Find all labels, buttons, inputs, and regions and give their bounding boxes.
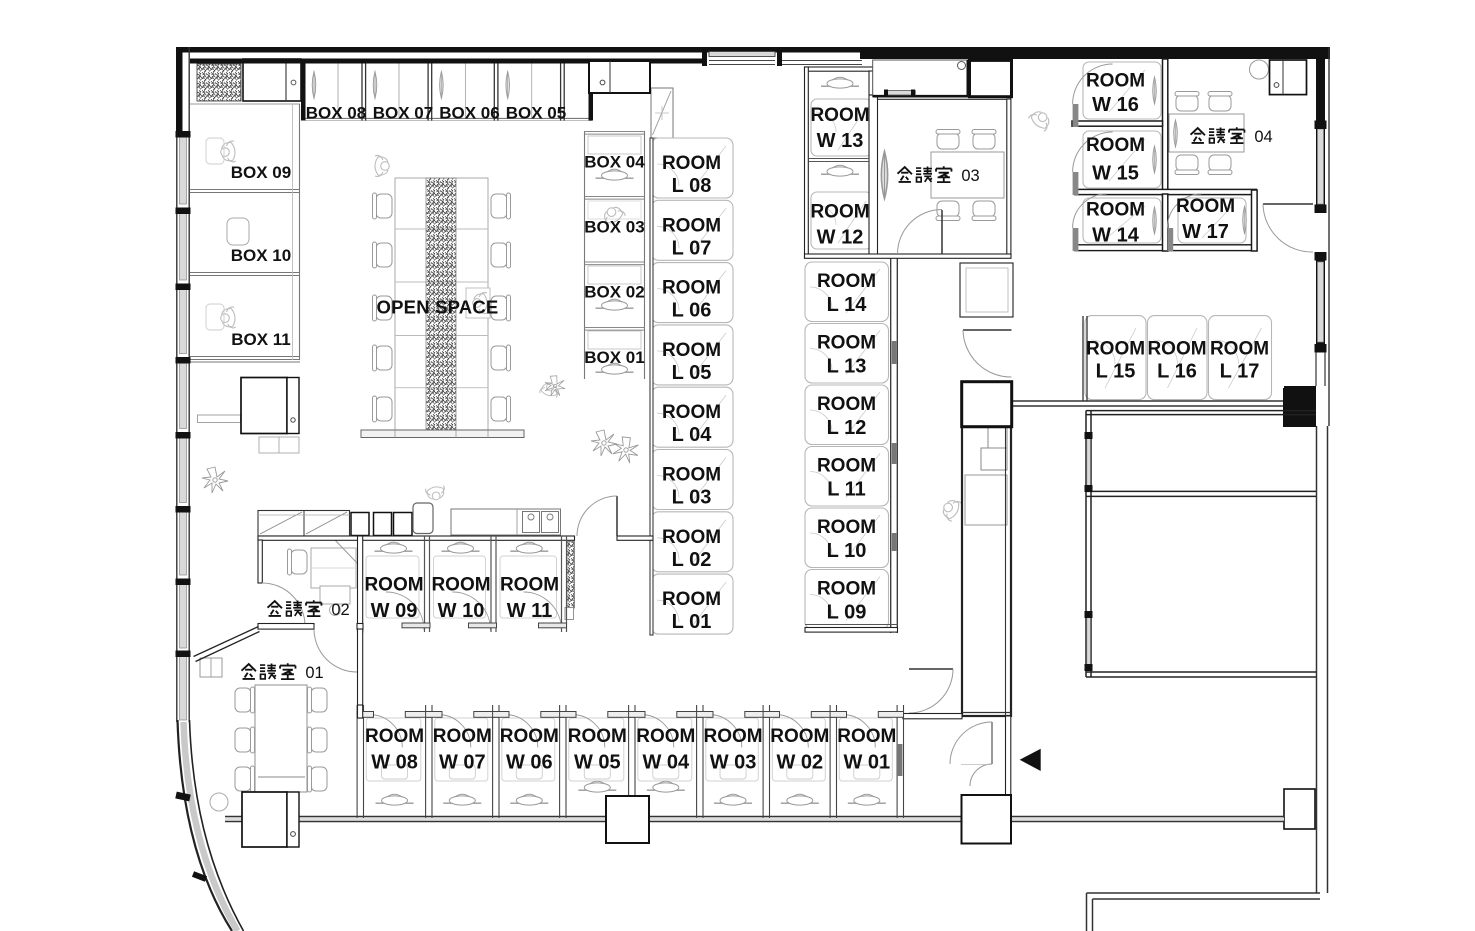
svg-text:ROOM: ROOM bbox=[1086, 71, 1145, 92]
svg-text:W 10: W 10 bbox=[438, 600, 485, 622]
svg-text:01: 01 bbox=[305, 664, 323, 682]
svg-text:W 09: W 09 bbox=[371, 600, 418, 622]
svg-text:ROOM: ROOM bbox=[568, 726, 627, 747]
svg-text:ROOM: ROOM bbox=[1147, 339, 1206, 360]
svg-text:W 15: W 15 bbox=[1092, 163, 1139, 185]
svg-text:ROOM: ROOM bbox=[817, 517, 876, 538]
svg-text:L 03: L 03 bbox=[672, 487, 712, 509]
svg-text:BOX 09: BOX 09 bbox=[231, 163, 291, 182]
svg-text:ROOM: ROOM bbox=[662, 402, 721, 423]
svg-text:BOX 07: BOX 07 bbox=[373, 104, 433, 123]
svg-text:ROOM: ROOM bbox=[662, 527, 721, 548]
svg-text:W 12: W 12 bbox=[817, 227, 864, 249]
svg-text:ROOM: ROOM bbox=[817, 579, 876, 600]
svg-text:ROOM: ROOM bbox=[662, 340, 721, 361]
svg-text:L 16: L 16 bbox=[1157, 361, 1197, 383]
svg-text:ROOM: ROOM bbox=[662, 153, 721, 174]
svg-text:L 15: L 15 bbox=[1096, 361, 1136, 383]
svg-text:ROOM: ROOM bbox=[703, 726, 762, 747]
svg-text:ROOM: ROOM bbox=[500, 575, 559, 596]
svg-text:BOX 03: BOX 03 bbox=[584, 218, 644, 237]
svg-text:W 16: W 16 bbox=[1092, 94, 1139, 116]
svg-text:ROOM: ROOM bbox=[810, 202, 869, 223]
svg-text:ROOM: ROOM bbox=[1086, 339, 1145, 360]
svg-text:ROOM: ROOM bbox=[810, 105, 869, 126]
svg-text:L 04: L 04 bbox=[672, 424, 713, 446]
svg-text:ROOM: ROOM bbox=[1176, 196, 1235, 217]
svg-text:L 02: L 02 bbox=[672, 549, 712, 571]
svg-text:ROOM: ROOM bbox=[433, 726, 492, 747]
svg-text:L 10: L 10 bbox=[827, 540, 867, 562]
svg-text:ROOM: ROOM bbox=[364, 575, 423, 596]
svg-text:BOX 05: BOX 05 bbox=[506, 104, 566, 123]
svg-text:BOX 02: BOX 02 bbox=[584, 283, 644, 302]
svg-text:W 17: W 17 bbox=[1182, 221, 1229, 243]
svg-text:OPEN SPACE: OPEN SPACE bbox=[377, 297, 499, 318]
svg-text:L 14: L 14 bbox=[827, 294, 868, 316]
svg-text:W 03: W 03 bbox=[710, 752, 757, 774]
svg-text:BOX 08: BOX 08 bbox=[306, 104, 366, 123]
svg-text:ROOM: ROOM bbox=[1210, 339, 1269, 360]
svg-text:ROOM: ROOM bbox=[837, 726, 896, 747]
svg-text:ROOM: ROOM bbox=[1086, 135, 1145, 156]
svg-text:W 01: W 01 bbox=[843, 752, 890, 774]
svg-text:ROOM: ROOM bbox=[817, 333, 876, 354]
svg-text:W 02: W 02 bbox=[776, 752, 823, 774]
svg-text:L 05: L 05 bbox=[672, 362, 712, 384]
svg-text:ROOM: ROOM bbox=[662, 589, 721, 610]
svg-text:04: 04 bbox=[1254, 128, 1272, 146]
svg-text:W 06: W 06 bbox=[506, 752, 553, 774]
svg-text:ROOM: ROOM bbox=[817, 456, 876, 477]
svg-text:ROOM: ROOM bbox=[662, 465, 721, 486]
svg-text:ROOM: ROOM bbox=[1086, 200, 1145, 221]
svg-text:L 11: L 11 bbox=[827, 479, 866, 501]
svg-text:BOX 11: BOX 11 bbox=[231, 330, 291, 349]
svg-text:BOX 10: BOX 10 bbox=[231, 246, 291, 265]
svg-text:W 08: W 08 bbox=[371, 752, 418, 774]
svg-text:W 13: W 13 bbox=[817, 130, 864, 152]
svg-text:02: 02 bbox=[331, 601, 349, 619]
svg-text:BOX 01: BOX 01 bbox=[584, 348, 644, 367]
svg-text:03: 03 bbox=[961, 167, 979, 185]
svg-text:BOX 06: BOX 06 bbox=[439, 104, 499, 123]
svg-text:ROOM: ROOM bbox=[662, 215, 721, 236]
svg-text:ROOM: ROOM bbox=[817, 271, 876, 292]
svg-text:W 04: W 04 bbox=[642, 752, 690, 774]
svg-text:L 17: L 17 bbox=[1220, 361, 1260, 383]
svg-text:L 01: L 01 bbox=[672, 611, 712, 633]
svg-text:L 06: L 06 bbox=[672, 300, 712, 322]
svg-text:W 11: W 11 bbox=[507, 600, 553, 622]
svg-text:ROOM: ROOM bbox=[636, 726, 695, 747]
svg-text:ROOM: ROOM bbox=[770, 726, 829, 747]
svg-text:ROOM: ROOM bbox=[365, 726, 424, 747]
svg-text:L 08: L 08 bbox=[672, 175, 712, 197]
svg-text:L 07: L 07 bbox=[672, 237, 712, 259]
svg-text:ROOM: ROOM bbox=[500, 726, 559, 747]
svg-text:ROOM: ROOM bbox=[662, 278, 721, 299]
svg-text:BOX 04: BOX 04 bbox=[584, 153, 645, 172]
svg-text:W 14: W 14 bbox=[1092, 225, 1140, 247]
svg-text:L 09: L 09 bbox=[827, 602, 867, 624]
svg-text:ROOM: ROOM bbox=[817, 394, 876, 415]
svg-text:ROOM: ROOM bbox=[431, 575, 490, 596]
svg-text:W 07: W 07 bbox=[439, 752, 486, 774]
svg-text:L 13: L 13 bbox=[827, 356, 867, 378]
svg-text:W 05: W 05 bbox=[574, 752, 621, 774]
svg-text:L 12: L 12 bbox=[827, 417, 867, 439]
